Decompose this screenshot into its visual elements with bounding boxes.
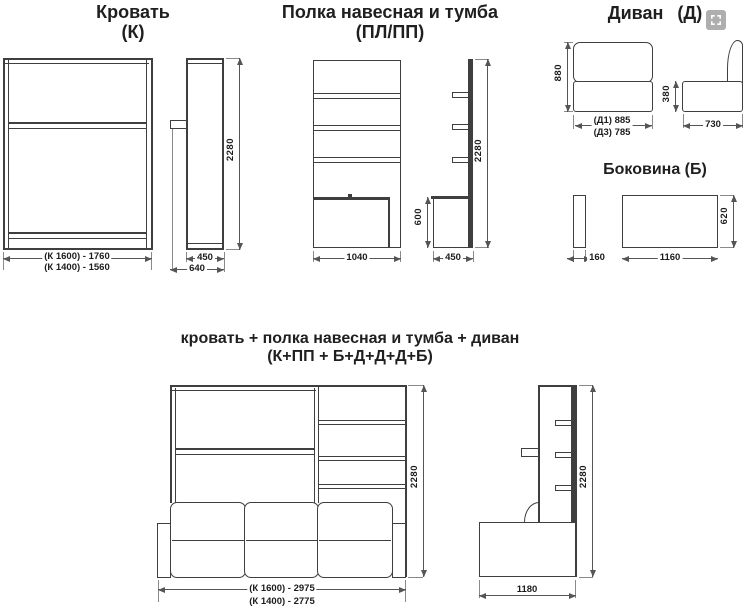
cabinet-side-body	[433, 197, 473, 248]
combo-side-shelf-tab	[555, 420, 572, 426]
extension-line	[579, 577, 593, 578]
bed-side-height-dim-line	[239, 58, 240, 250]
bed-side-depth-total-label: 640	[187, 263, 207, 274]
shelf-side-height-label: 2280	[473, 138, 484, 163]
combo-front-width-label-k1400: (К 1400) - 2775	[247, 596, 316, 607]
combo-bed-mid-rail-line	[175, 454, 314, 455]
combo-side-height-dim-line	[592, 385, 593, 577]
bed-side-depth-body-label: 450	[195, 252, 215, 263]
bed-side-bottom-inner-line	[188, 243, 222, 244]
cabinet-height-dim-line	[427, 197, 428, 248]
cabinet-front-right-edge	[388, 197, 390, 248]
bed-side-top-inner-line	[188, 63, 222, 64]
shelf-code: (ПЛ/ПП)	[280, 23, 500, 43]
combo-side-sofa-seat	[479, 522, 576, 577]
extension-line	[652, 115, 653, 129]
bed-front-bottom-rail-line	[8, 232, 147, 234]
bed-side-body	[186, 58, 224, 250]
sofa-side-seat	[682, 81, 743, 112]
combo-side-shelf-tab	[555, 485, 572, 491]
bed-front-top-inner-line	[5, 63, 149, 64]
combo-shelf-line	[319, 424, 405, 425]
cabinet-front-handle	[348, 194, 352, 197]
combo-sofa-seam-line	[319, 540, 391, 541]
combo-title: кровать + полка навесная и тумба + диван	[104, 330, 596, 348]
cabinet-side-top-edge	[431, 196, 473, 199]
sofa-side-height-dim-line	[675, 81, 676, 112]
shelf-front-shelf-line	[314, 157, 400, 158]
combo-shelf-line	[319, 488, 405, 489]
bed-side-handle	[170, 120, 187, 129]
shelf-front-width-label: 1040	[344, 252, 369, 263]
combo-bed-right-frame-line	[314, 388, 315, 503]
shelf-side-shelf-tab	[452, 92, 469, 98]
extension-line	[573, 115, 574, 129]
shelf-front-shelf-line	[314, 98, 400, 99]
shelf-side-depth-label: 450	[443, 252, 463, 263]
combo-side-depth-dim-line	[479, 595, 576, 596]
bed-front-mid-rail-line	[8, 122, 147, 124]
combo-front-height-dim-line	[423, 385, 424, 577]
extension-line	[473, 251, 474, 262]
combo-shelf-line	[319, 456, 405, 457]
bed-front-frame	[3, 58, 153, 250]
combo-bed-left-edge	[170, 385, 172, 503]
combo-side-panel-right	[392, 523, 406, 578]
combo-side-bed-handle	[521, 448, 539, 457]
extension-line	[224, 252, 225, 272]
sofa-front-backrest	[573, 42, 653, 83]
combo-unit-top-edge	[170, 385, 407, 387]
bed-front-width-label-k1600: (К 1600) - 1760	[42, 251, 111, 262]
combo-sofa-seam-line	[172, 540, 244, 541]
combo-front-height-label: 2280	[409, 464, 420, 489]
sofa-side-height-label: 380	[661, 84, 672, 103]
shelf-side-height-dim-line	[487, 59, 488, 248]
bed-side-height-label: 2280	[225, 137, 236, 162]
cabinet-height-label: 600	[413, 207, 424, 226]
side-panel-height-label: 620	[719, 206, 730, 225]
combo-bed-top-inner-line	[172, 390, 316, 391]
side-panel-width-label: 1160	[658, 252, 683, 263]
expand-button[interactable]	[706, 10, 726, 30]
side-panel-thickness-label: 160	[587, 252, 607, 263]
side-panel-edge-view	[573, 195, 586, 248]
sofa-front-width-label-d3: (Д3) 785	[592, 127, 633, 138]
combo-side-panel-left	[157, 523, 171, 578]
extension-line	[172, 129, 173, 269]
extension-line	[408, 577, 423, 578]
shelf-front-shelf-line	[314, 162, 400, 163]
sofa-code: (Д)	[677, 4, 702, 24]
bed-title: Кровать	[63, 3, 203, 23]
bed-front-left-inner-line	[8, 60, 9, 248]
combo-sofa-seam-line	[246, 540, 317, 541]
combo-shelf-left-edge	[318, 387, 319, 503]
bed-front-right-inner-line	[146, 60, 147, 248]
shelf-front-shelf-line	[314, 125, 400, 126]
sofa-front-height-dim-line	[567, 42, 568, 112]
combo-code: (К+ПП + Б+Д+Д+Д+Б)	[104, 348, 596, 366]
shelf-title: Полка навесная и тумба	[280, 3, 500, 23]
combo-side-sofa-backrest-curve	[524, 502, 539, 522]
side-panel-height-dim-line	[733, 195, 734, 248]
bed-front-width-label-k1400: (К 1400) - 1560	[42, 262, 111, 273]
combo-bed-left-inner-line	[175, 388, 176, 503]
combo-side-shelf-tab	[555, 452, 572, 458]
combo-front-width-label-k1600: (К 1600) - 2975	[247, 583, 316, 594]
sofa-front-width-label-d1: (Д1) 885	[592, 115, 633, 126]
bed-front-mid-rail-line	[8, 128, 147, 129]
combo-side-height-label: 2280	[578, 464, 589, 489]
shelf-front-shelf-line	[314, 93, 400, 94]
side-panel-face-view	[622, 195, 718, 248]
side-panel-title: Боковина (Б)	[585, 161, 725, 179]
sofa-front-height-label: 880	[553, 63, 564, 82]
bed-code: (К)	[63, 23, 203, 43]
combo-bed-mid-rail-line	[175, 448, 314, 450]
combo-side-depth-label: 1180	[515, 584, 540, 595]
sofa-front-seat	[573, 81, 653, 112]
bed-front-bottom-rail-line	[8, 238, 147, 239]
furniture-drawing-sheet: Кровать (К) (К 1600) - 1760 (К 1400) - 1…	[0, 0, 748, 613]
sofa-title: Диван	[608, 4, 664, 24]
shelf-side-shelf-tab	[452, 157, 469, 163]
combo-shelf-line	[319, 460, 405, 461]
shelf-front-shelf-line	[314, 130, 400, 131]
sofa-side-depth-label: 730	[703, 119, 723, 130]
sofa-side-backrest	[727, 40, 743, 83]
expand-icon	[710, 14, 722, 26]
combo-shelf-line	[319, 484, 405, 485]
shelf-side-shelf-tab	[452, 124, 469, 130]
combo-shelf-line	[319, 420, 405, 421]
cabinet-front-top-edge	[313, 197, 389, 200]
sofa-title-row: Диван (Д)	[585, 4, 725, 24]
